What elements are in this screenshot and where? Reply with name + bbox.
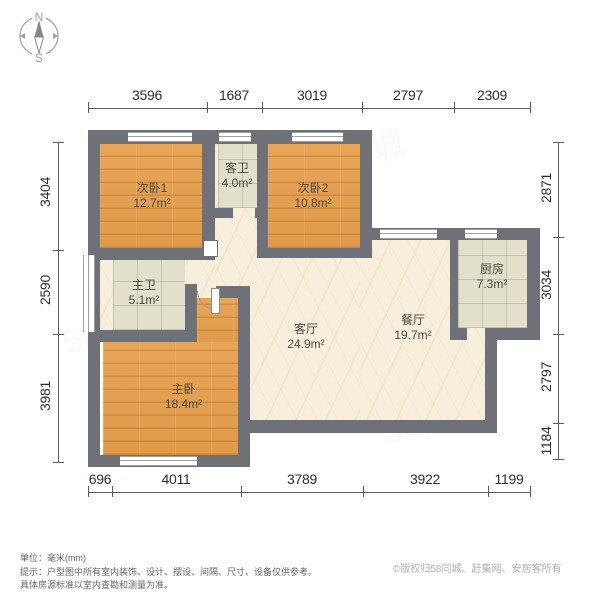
dim-bottom-5: 1199 xyxy=(495,471,524,487)
room-name: 客卫 xyxy=(214,161,260,176)
compass-east-arrow-icon xyxy=(53,33,58,39)
dim-bottom-1: 696 xyxy=(89,471,111,487)
dim-tick xyxy=(553,459,564,460)
room-name: 次卧2 xyxy=(263,181,363,196)
dim-tick xyxy=(53,334,64,335)
room-area: 4.0m² xyxy=(214,176,260,191)
dim-right-4: 1184 xyxy=(538,427,554,456)
dim-tick xyxy=(553,142,564,143)
tip-note-line1: 提示：户型图中所有室内装饰、设计、摆设、间隔、尺寸、设备仅供参考。 xyxy=(20,565,317,578)
dim-right-2: 3034 xyxy=(538,270,554,300)
room-area: 10.8m² xyxy=(263,196,363,211)
dim-tick xyxy=(207,102,208,113)
room-name: 主卫 xyxy=(108,278,180,293)
dim-tick xyxy=(53,142,64,143)
dim-right-1: 2871 xyxy=(538,173,554,203)
floor-plan-page: 58同城 58同城 58同城 N S xyxy=(0,0,600,600)
compass-icon: N S xyxy=(12,9,66,63)
dim-tick xyxy=(262,102,263,113)
room-area: 12.7m² xyxy=(100,196,204,211)
copyright-text: ©版权归58同城、赶集网、安居客所有 xyxy=(393,560,562,575)
dim-left-3: 3981 xyxy=(37,381,53,411)
wall-bedroom1-bottom xyxy=(88,248,215,260)
dim-tick xyxy=(88,102,89,113)
dim-line-bottom xyxy=(88,492,530,493)
tip-note-line2: 具体房源标准以室内查勘和测量为准。 xyxy=(20,578,173,591)
compass-west-arrow-icon xyxy=(20,33,25,39)
dim-right-3: 2797 xyxy=(538,362,554,392)
dim-line-left xyxy=(58,142,59,462)
room-area: 7.3m² xyxy=(456,277,528,292)
dim-top-5: 2309 xyxy=(477,87,507,103)
dim-bottom-2: 4011 xyxy=(162,471,191,487)
duct-box xyxy=(203,240,218,257)
room-label-master-bath: 主卫 5.1m² xyxy=(108,278,180,308)
dim-left-2: 2590 xyxy=(37,275,53,305)
unit-note: 单位：毫米(mm) xyxy=(20,551,86,564)
dim-bottom-3: 3789 xyxy=(287,471,317,487)
room-area: 18.4m² xyxy=(131,397,236,412)
dim-tick xyxy=(53,250,64,251)
dim-bottom-4: 3922 xyxy=(410,471,440,487)
dim-tick xyxy=(241,486,242,497)
dim-top-4: 2797 xyxy=(393,87,423,103)
room-name: 客厅 xyxy=(260,322,352,337)
dim-tick xyxy=(362,102,363,113)
dim-tick xyxy=(363,486,364,497)
dim-line-top xyxy=(88,108,530,109)
dim-top-1: 3596 xyxy=(132,87,162,103)
wall-master-right xyxy=(238,286,250,467)
master-door-leaf-icon xyxy=(211,288,220,314)
window-bedroom2 xyxy=(292,132,343,142)
room-label-living: 客厅 24.9m² xyxy=(260,322,352,352)
window-master-bath xyxy=(83,255,95,332)
room-area: 5.1m² xyxy=(108,293,180,308)
window-master-bedroom xyxy=(120,456,197,466)
dim-tick xyxy=(553,334,564,335)
dim-tick xyxy=(488,486,489,497)
dim-tick xyxy=(553,237,564,238)
wall-guestbath-bottom-a xyxy=(215,208,233,218)
window-dining xyxy=(380,229,437,239)
room-label-kitchen: 厨房 7.3m² xyxy=(456,262,528,292)
dim-tick xyxy=(553,423,564,424)
dim-tick xyxy=(88,486,89,497)
dim-top-2: 1687 xyxy=(219,87,249,103)
room-label-master-bedroom: 主卧 18.4m² xyxy=(131,382,236,412)
window-guest-bath xyxy=(219,132,251,142)
room-label-dining: 餐厅 19.7m² xyxy=(368,313,458,343)
room-label-bedroom1: 次卧1 12.7m² xyxy=(100,181,204,211)
dim-left-1: 3404 xyxy=(37,177,53,207)
room-area: 24.9m² xyxy=(260,337,352,352)
window-kitchen xyxy=(465,229,497,239)
room-label-guest-bath: 客卫 4.0m² xyxy=(214,161,260,191)
wall-dining-right xyxy=(485,333,497,433)
room-name: 厨房 xyxy=(456,262,528,277)
dim-tick xyxy=(454,102,455,113)
room-name: 餐厅 xyxy=(368,313,458,328)
dim-tick xyxy=(530,102,531,113)
wall-masterbath-bottom xyxy=(88,330,197,342)
wall-living-bottom xyxy=(238,420,497,433)
room-area: 19.7m² xyxy=(368,328,458,343)
room-label-bedroom2: 次卧2 10.8m² xyxy=(263,181,363,211)
dim-tick xyxy=(112,486,113,497)
dim-line-right xyxy=(558,142,559,459)
dim-tick xyxy=(53,462,64,463)
room-name: 次卧1 xyxy=(100,181,204,196)
window-bedroom1 xyxy=(128,132,192,142)
wall-bedroom2-bottom xyxy=(257,248,372,258)
dim-tick xyxy=(530,486,531,497)
room-name: 主卧 xyxy=(131,382,236,397)
dim-top-3: 3019 xyxy=(297,87,327,103)
